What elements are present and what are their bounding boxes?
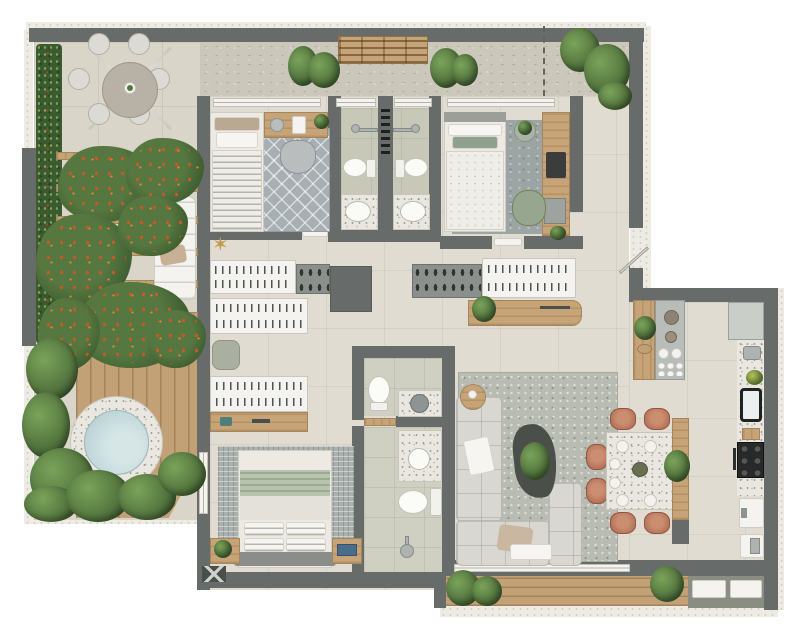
wall-bedroom2-right bbox=[570, 96, 583, 212]
shoe-shelf bbox=[296, 264, 330, 294]
dining-plate bbox=[644, 494, 657, 507]
wall-dining-stub bbox=[672, 518, 689, 544]
appliance-detail bbox=[750, 538, 760, 554]
kitchen-sink bbox=[740, 388, 762, 422]
plant bbox=[452, 54, 478, 86]
wall-bath-right bbox=[429, 96, 441, 242]
master-pillow bbox=[286, 538, 326, 552]
plant bbox=[26, 338, 78, 400]
terrace-chair bbox=[128, 33, 150, 55]
master-blanket bbox=[240, 470, 330, 498]
floor-plan: ✶ bbox=[0, 0, 800, 640]
window-bedroom2 bbox=[447, 98, 555, 107]
island-plate bbox=[671, 348, 682, 359]
master-pillow bbox=[244, 538, 284, 552]
door-bedroom2 bbox=[494, 238, 522, 246]
desk-laptop bbox=[546, 152, 566, 178]
dresser-decor bbox=[220, 417, 232, 426]
island-bowl bbox=[637, 344, 652, 354]
dresser-decor bbox=[252, 419, 270, 423]
hot-tub-water bbox=[84, 410, 149, 475]
shower-head bbox=[351, 124, 360, 133]
vanity-sink bbox=[408, 448, 430, 470]
wall-master-bottom bbox=[197, 572, 445, 588]
dining-chair bbox=[586, 478, 608, 504]
closet-rack bbox=[482, 258, 576, 298]
master-pillow bbox=[244, 522, 284, 536]
master-duvet bbox=[240, 496, 330, 520]
bedroom1-chair bbox=[280, 140, 316, 174]
island-plant bbox=[634, 316, 656, 340]
console-handle bbox=[540, 306, 570, 309]
cooktop bbox=[737, 442, 764, 478]
door-threshold bbox=[364, 418, 396, 426]
dining-chair bbox=[610, 408, 636, 430]
cutting-board bbox=[742, 428, 760, 440]
desk-plant bbox=[550, 226, 566, 240]
shower-head bbox=[400, 544, 414, 558]
dining-plate bbox=[609, 458, 621, 470]
dining-chair bbox=[610, 512, 636, 534]
island-pot bbox=[664, 310, 679, 325]
desk-plant bbox=[314, 114, 329, 129]
boundary-dashed-line bbox=[543, 26, 545, 96]
washer bbox=[692, 580, 726, 598]
desk-hat bbox=[270, 118, 284, 132]
dining-chair bbox=[586, 444, 608, 470]
terrace-chair bbox=[88, 33, 110, 55]
wall-wc-right bbox=[442, 346, 455, 572]
wall-right-outer bbox=[764, 288, 778, 610]
curb-right-lower bbox=[778, 288, 784, 610]
table-plant bbox=[127, 85, 133, 91]
sofa-throw bbox=[510, 544, 552, 560]
master-headboard bbox=[234, 552, 336, 566]
toilet-bowl bbox=[343, 158, 367, 177]
coffee-table-plant bbox=[520, 442, 550, 480]
window-bedroom1 bbox=[213, 98, 321, 107]
nightstand-books bbox=[337, 544, 357, 556]
side-table-mug bbox=[468, 390, 477, 399]
terrace-chair bbox=[68, 68, 90, 90]
bedroom1-duvet bbox=[212, 150, 262, 230]
toilet-tank bbox=[366, 159, 376, 178]
plant bbox=[598, 82, 632, 110]
toilet-tank bbox=[430, 488, 442, 516]
starfish-decor: ✶ bbox=[212, 234, 229, 254]
oven-handle bbox=[741, 508, 747, 518]
slatted-bench bbox=[338, 36, 428, 64]
dining-plate bbox=[616, 494, 629, 507]
closet-rack bbox=[210, 376, 308, 412]
bench-plant bbox=[664, 450, 690, 482]
master-pillow bbox=[286, 522, 326, 536]
shower-glass bbox=[381, 108, 390, 154]
toilet-bowl bbox=[398, 490, 428, 514]
dining-plate bbox=[644, 440, 657, 453]
kitchen-island-wood bbox=[633, 300, 655, 380]
bedroom2-pillow-green bbox=[452, 136, 498, 149]
wall-bedroom2-bottom-a bbox=[440, 236, 492, 249]
plant bbox=[650, 566, 684, 602]
dining-chair bbox=[644, 512, 670, 534]
toilet-bowl bbox=[368, 376, 390, 404]
desk-device bbox=[544, 198, 566, 224]
plant bbox=[308, 52, 340, 88]
desk-notebook bbox=[292, 116, 306, 134]
window-bath-right bbox=[394, 98, 432, 107]
plant bbox=[158, 452, 206, 496]
wall-right-upper bbox=[629, 28, 643, 228]
bedroom1-pillow bbox=[216, 132, 258, 148]
vanity-sink bbox=[345, 201, 371, 222]
plant bbox=[472, 576, 502, 606]
bedroom2-pillow bbox=[448, 124, 502, 136]
closet-rack bbox=[210, 260, 296, 294]
fruit-bowl bbox=[746, 370, 763, 385]
closet-rack bbox=[210, 298, 308, 334]
refrigerator bbox=[728, 302, 764, 340]
washer bbox=[730, 580, 762, 598]
cooktop-handle bbox=[733, 448, 736, 470]
toilet-bowl bbox=[404, 158, 428, 177]
console-plant bbox=[472, 296, 496, 322]
island-glasses bbox=[657, 362, 683, 376]
vanity-sink bbox=[410, 394, 429, 413]
wall-wc-left-upper bbox=[352, 346, 364, 420]
sofa-chaise bbox=[548, 482, 582, 566]
bedroom2-headboard bbox=[444, 112, 506, 122]
window-bath-left bbox=[336, 98, 376, 107]
shoe-cabinet bbox=[412, 264, 482, 298]
side-table-plant bbox=[518, 121, 532, 135]
island-plate bbox=[658, 348, 669, 359]
floor-vent bbox=[202, 566, 226, 582]
toilet-tank bbox=[370, 402, 388, 411]
vanity-sink bbox=[400, 201, 426, 222]
dining-plate bbox=[616, 440, 629, 453]
bedroom2-chair bbox=[512, 190, 546, 226]
wall-wc-top bbox=[352, 346, 455, 358]
dining-chair bbox=[644, 408, 670, 430]
pouf bbox=[212, 340, 240, 370]
dining-centerpiece bbox=[632, 462, 648, 477]
dining-plate bbox=[609, 477, 621, 489]
shower-head bbox=[411, 124, 420, 133]
closet-cabinet bbox=[330, 266, 372, 312]
wall-top bbox=[29, 28, 644, 42]
wall-terrace-left bbox=[22, 148, 36, 346]
bedroom1-pillow bbox=[214, 117, 260, 131]
island-pot bbox=[665, 331, 677, 343]
wall-bath-bottom bbox=[328, 229, 441, 242]
nightstand-plant bbox=[214, 540, 232, 558]
kitchen-faucet bbox=[743, 346, 761, 360]
bedroom2-duvet bbox=[446, 151, 504, 230]
